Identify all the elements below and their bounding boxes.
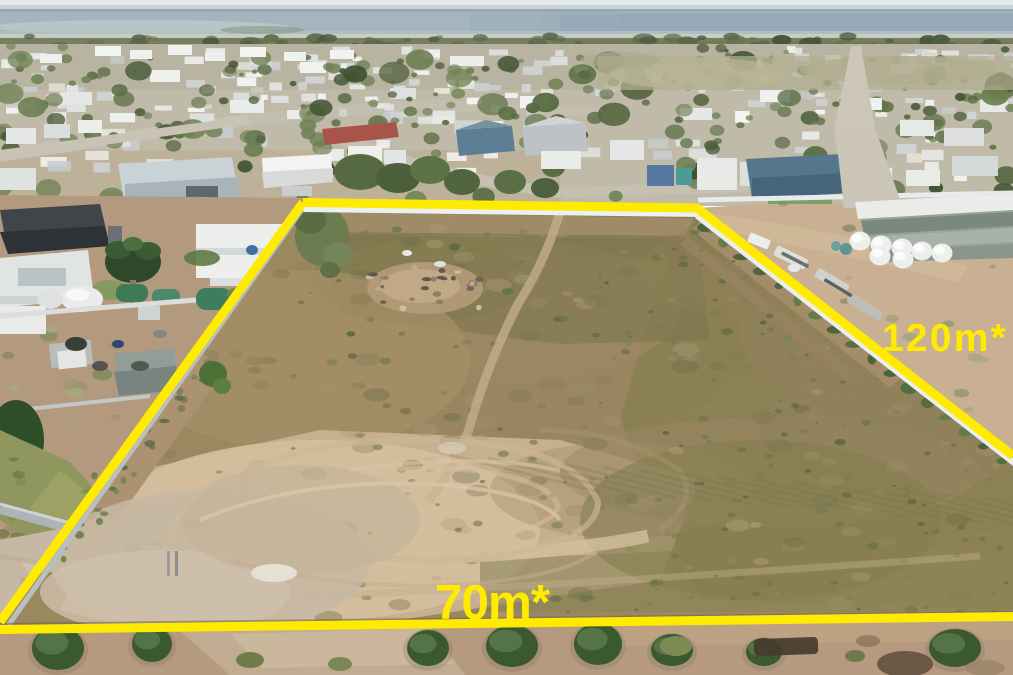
svg-text:120m*: 120m*: [882, 317, 1008, 360]
svg-text:70m*: 70m*: [435, 575, 551, 630]
